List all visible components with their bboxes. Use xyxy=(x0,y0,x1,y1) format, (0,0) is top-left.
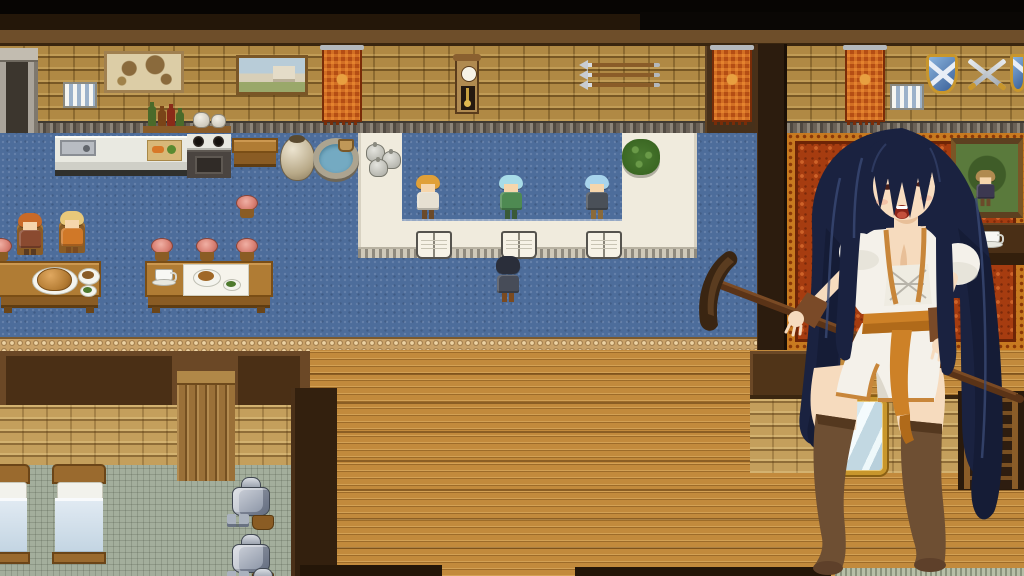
food-carrot xyxy=(152,146,164,153)
sprite-hair xyxy=(496,256,520,274)
stove-top xyxy=(187,134,231,150)
stove-body xyxy=(187,150,231,178)
archway-lintel xyxy=(0,48,38,62)
npc-villager-teal-hair[interactable] xyxy=(497,175,525,221)
hero-sprite xyxy=(690,118,1024,576)
armor-helmet xyxy=(253,568,273,576)
prep-table-top xyxy=(232,138,278,153)
table-leg xyxy=(257,307,265,313)
sword-hilt xyxy=(967,82,976,91)
water-bucket xyxy=(338,139,354,152)
painting-castle xyxy=(273,66,295,82)
prep-table-front xyxy=(234,153,276,167)
bed-headboard xyxy=(0,464,30,484)
food-greens xyxy=(167,145,176,154)
shelf-bottle xyxy=(176,112,184,126)
bedroom-pillar xyxy=(177,371,235,481)
open-book[interactable] xyxy=(501,231,537,259)
shelf-pot xyxy=(193,112,210,128)
round-stool[interactable] xyxy=(0,238,12,262)
window-blinds xyxy=(63,82,97,108)
round-stool[interactable] xyxy=(151,238,173,262)
shelf-pot xyxy=(211,114,226,128)
sprite-body xyxy=(586,192,608,210)
clock-pendulum xyxy=(461,86,475,110)
sprite-legs xyxy=(66,247,78,253)
bedroom-wall xyxy=(0,405,293,467)
stone-archway[interactable] xyxy=(0,48,38,140)
mounted-spear xyxy=(582,73,660,77)
sprite-legs xyxy=(422,210,434,219)
oven-door xyxy=(195,156,223,174)
wall-shield xyxy=(926,54,958,94)
round-stool[interactable] xyxy=(196,238,218,262)
bedroom-divider-wall xyxy=(291,388,337,576)
sprite-body xyxy=(61,228,83,246)
ceiling-brown-band xyxy=(0,30,1024,46)
dining-table-left[interactable] xyxy=(0,261,101,313)
bed-blanket xyxy=(0,498,27,554)
npc-seated-blonde[interactable] xyxy=(58,211,86,257)
table-leg xyxy=(152,307,160,313)
teacup xyxy=(155,269,173,283)
armor-torso xyxy=(232,487,270,516)
dining-table-right[interactable] xyxy=(145,261,273,313)
sprite-body xyxy=(497,275,519,293)
ceiling-black-step xyxy=(640,12,1024,32)
npc-seated-redhead[interactable] xyxy=(16,213,44,259)
plate-greens xyxy=(83,287,92,293)
kitchen-counter[interactable] xyxy=(55,136,187,176)
table-front xyxy=(1,297,98,308)
wall-map xyxy=(104,51,184,93)
wall-tapestry xyxy=(712,48,752,122)
wall-recess xyxy=(6,356,172,407)
bottle-shelf xyxy=(143,126,189,133)
storage-jar[interactable] xyxy=(280,136,315,181)
wall-shield-partial xyxy=(1010,54,1024,92)
stove-burner xyxy=(193,136,204,147)
clock-face xyxy=(461,66,477,82)
mounted-spear xyxy=(582,83,660,87)
wall-tapestry xyxy=(845,48,885,122)
armor-stand-base xyxy=(252,515,274,530)
shelf-bottle xyxy=(158,110,166,126)
npc-villager-blue-hair[interactable] xyxy=(583,175,611,221)
lower-front-wall xyxy=(0,351,310,407)
game-viewport[interactable] xyxy=(0,0,1024,576)
sprite-legs xyxy=(505,210,517,219)
archway-opening xyxy=(6,62,28,140)
table-leg xyxy=(4,307,12,313)
bed-blanket xyxy=(55,498,103,554)
armor-stand[interactable] xyxy=(226,477,274,529)
shelf-bottle xyxy=(148,106,156,126)
npc-villager-blonde[interactable] xyxy=(414,175,442,221)
open-book[interactable] xyxy=(416,231,452,259)
kitchen-sink xyxy=(60,140,96,156)
landscape-painting xyxy=(236,55,308,95)
plate-food xyxy=(198,271,214,281)
bed[interactable] xyxy=(52,464,106,568)
plate-food xyxy=(82,271,94,279)
table-front xyxy=(148,297,270,308)
roast-bird xyxy=(37,268,72,291)
bed-footboard xyxy=(52,552,106,564)
shield-stripe xyxy=(1010,59,1024,89)
open-book[interactable] xyxy=(586,231,622,259)
sprite-body xyxy=(19,230,41,248)
sprite-legs xyxy=(24,249,36,255)
sprite-legs xyxy=(502,293,514,302)
sprite-body xyxy=(417,192,439,210)
stove-burner xyxy=(213,136,224,147)
round-stool[interactable] xyxy=(236,195,258,219)
prep-table[interactable] xyxy=(232,138,278,171)
indoor-bush[interactable] xyxy=(622,139,660,175)
floor-opening[interactable] xyxy=(300,565,442,576)
wall-tapestry xyxy=(322,48,362,122)
crossed-swords-emblem xyxy=(962,56,1012,94)
cutting-board xyxy=(147,140,182,161)
bed-footboard xyxy=(0,552,30,564)
plate-greens xyxy=(226,281,236,287)
shelf-bottle xyxy=(167,108,175,126)
window-blinds xyxy=(890,84,924,110)
table-leg xyxy=(86,307,94,313)
grandfather-clock[interactable] xyxy=(455,58,479,114)
armor-boots xyxy=(227,514,249,527)
player-character[interactable] xyxy=(494,256,522,302)
bed-headboard xyxy=(52,464,106,484)
supply-sack[interactable] xyxy=(369,159,388,177)
stove[interactable] xyxy=(187,134,231,178)
armor-stand[interactable] xyxy=(238,568,286,576)
mounted-spear xyxy=(582,63,660,67)
sprite-body xyxy=(500,192,522,210)
bed[interactable] xyxy=(0,464,30,568)
sword-hilt xyxy=(997,82,1006,91)
round-stool[interactable] xyxy=(236,238,258,262)
sprite-legs xyxy=(591,210,603,219)
